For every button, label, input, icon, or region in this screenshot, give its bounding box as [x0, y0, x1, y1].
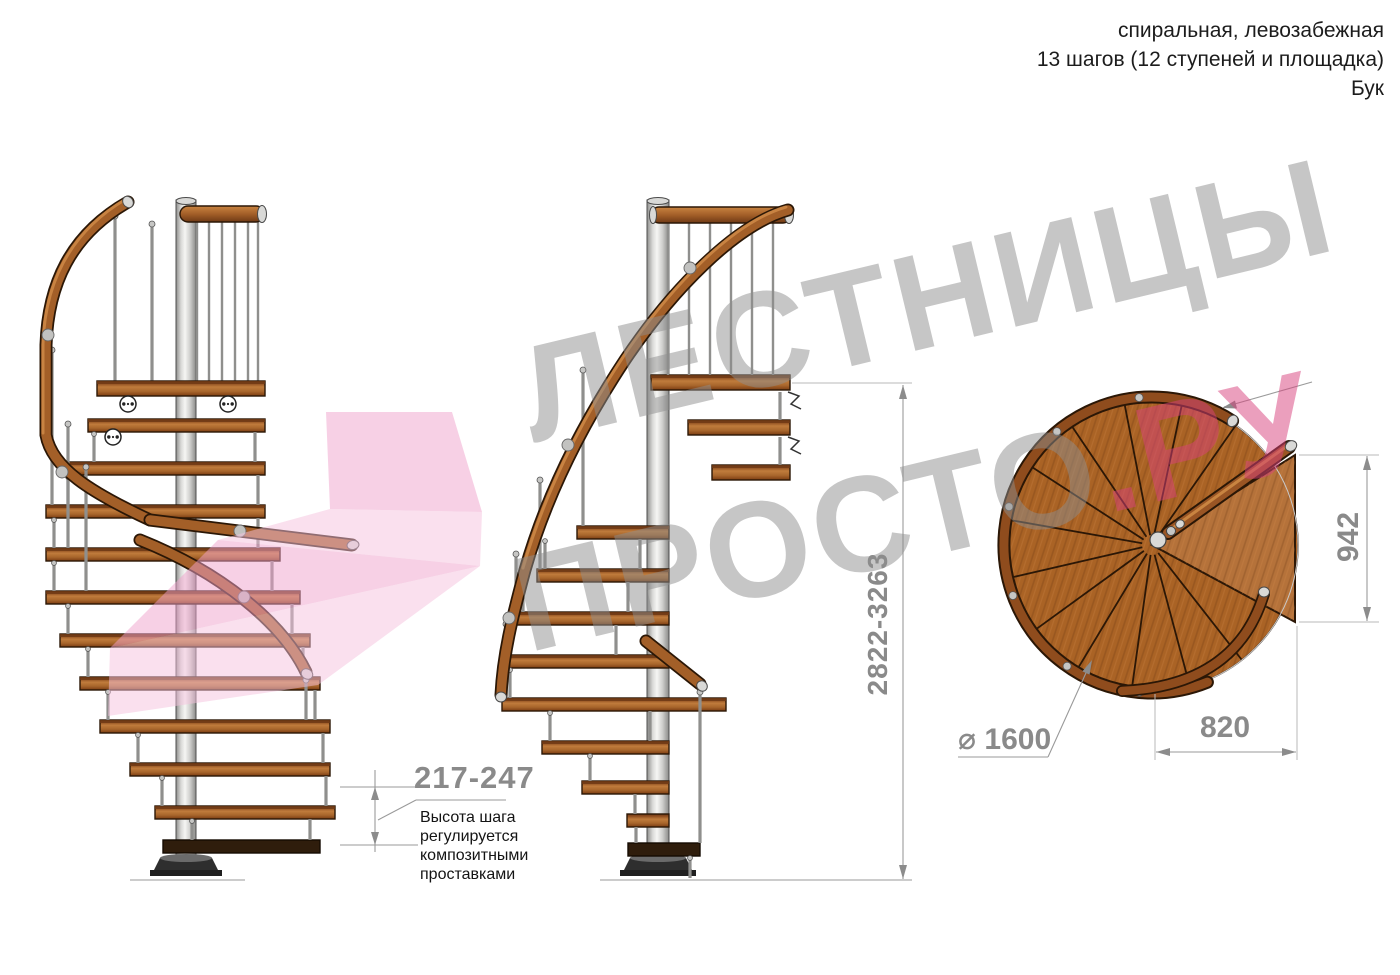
left-elevation-view	[42, 194, 360, 880]
dimension-platform-height: 942	[1332, 512, 1366, 562]
dimension-total-height: 2822-3263	[862, 553, 894, 696]
middle-view-handrail	[496, 207, 789, 702]
middle-elevation-view	[496, 198, 913, 881]
plan-view	[1004, 394, 1299, 697]
staircase-technical-drawing	[0, 0, 1400, 975]
dimension-step-height: 217-247	[414, 760, 535, 796]
dimension-platform-width: 820	[1200, 711, 1250, 745]
title-steps: 13 шагов (12 ступеней и площадка)	[1037, 45, 1384, 74]
middle-view-treads	[502, 526, 726, 856]
title-block: спиральная, левозабежная 13 шагов (12 ст…	[1037, 16, 1384, 103]
title-material: Бук	[1037, 74, 1384, 103]
left-view-handrail	[42, 194, 360, 681]
drawing-canvas: спиральная, левозабежная 13 шагов (12 ст…	[0, 0, 1400, 975]
dimension-diameter: ⌀ 1600	[958, 722, 1051, 757]
middle-view-balusters	[503, 223, 780, 878]
step-height-note: Высота шага регулируется композитными пр…	[420, 808, 528, 884]
title-type: спиральная, левозабежная	[1037, 16, 1384, 45]
